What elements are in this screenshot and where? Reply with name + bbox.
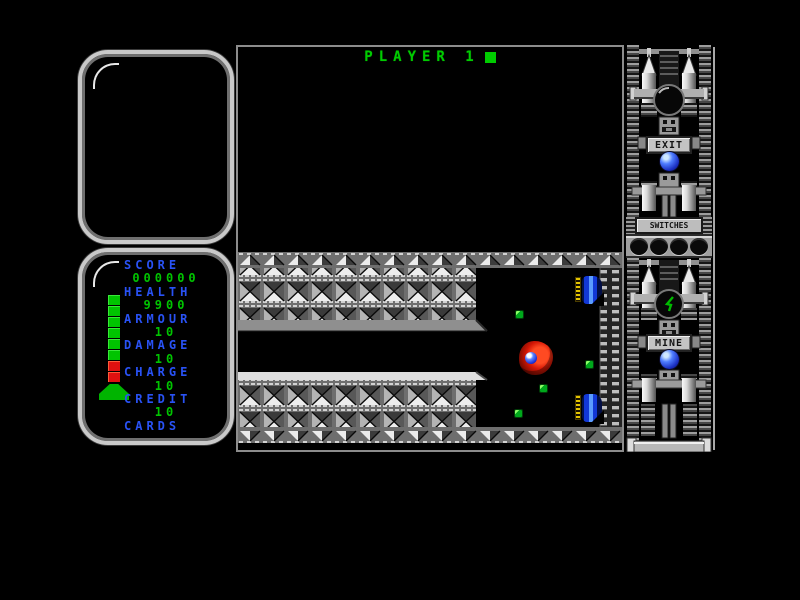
switches-plate: SWITCHES (635, 217, 703, 234)
stat-row: CREDIT10 (124, 393, 230, 420)
health-segment-green (108, 328, 120, 338)
stat-label: CARDS (124, 420, 230, 433)
stat-row: CARDS (124, 420, 230, 433)
stat-label: ARMOUR (124, 313, 230, 326)
stat-row: SCORE000000 (124, 259, 230, 286)
health-segment-green (108, 306, 120, 316)
health-segment-green (108, 295, 120, 305)
stat-value: 10 (128, 326, 204, 339)
cursor-block-icon (485, 52, 496, 63)
stat-label: HEALTH (124, 286, 230, 299)
status-orb-top (654, 85, 684, 115)
creature-part (525, 352, 537, 364)
player-title: PLAYER 1 (238, 49, 622, 65)
switch-panel (626, 234, 712, 258)
control-tower: EXIT SWITCHES MINE (626, 45, 716, 452)
switches-rib-left (626, 217, 635, 234)
mine-label: MINE (655, 338, 683, 349)
tower-top-machinery (626, 45, 716, 217)
switch-hole[interactable] (670, 238, 688, 255)
panel-shine (93, 261, 119, 287)
switches-label: SWITCHES (650, 221, 689, 230)
health-segment-red (108, 372, 120, 382)
stat-row: ARMOUR10 (124, 313, 230, 340)
wall-texture (238, 252, 622, 443)
switch-hole[interactable] (630, 238, 648, 255)
turret[interactable] (575, 394, 602, 422)
health-segment-green (108, 350, 120, 360)
mine-orb-button[interactable] (660, 350, 679, 369)
player-title-text: PLAYER 1 (364, 49, 479, 65)
pickup[interactable] (540, 385, 547, 392)
pickup[interactable] (516, 311, 523, 318)
playfield: PLAYER 1 (236, 45, 624, 452)
game-screen: SCORE000000HEALTH9900ARMOUR10DAMAGE10CHA… (0, 0, 800, 600)
hud-panel-stats: SCORE000000HEALTH9900ARMOUR10DAMAGE10CHA… (78, 248, 234, 445)
switch-hole[interactable] (690, 238, 708, 255)
exit-label: EXIT (655, 140, 683, 151)
health-segment-green (108, 317, 120, 327)
turret[interactable] (575, 276, 602, 304)
switch-hole[interactable] (650, 238, 668, 255)
stat-label: SCORE (124, 259, 230, 272)
stat-value: 10 (128, 380, 204, 393)
stat-value: 10 (128, 353, 204, 366)
stats-list: SCORE000000HEALTH9900ARMOUR10DAMAGE10CHA… (124, 259, 230, 433)
hud-panel-top (78, 50, 234, 244)
pickup[interactable] (586, 361, 593, 368)
stat-row: DAMAGE10 (124, 339, 230, 366)
health-segment-red (108, 361, 120, 371)
stat-label: CHARGE (124, 366, 230, 379)
switches-rib-right (703, 217, 712, 234)
stat-value: 000000 (128, 272, 204, 285)
stat-value: 10 (128, 406, 204, 419)
stat-value: 9900 (128, 299, 204, 312)
exit-orb-button[interactable] (660, 152, 679, 171)
stat-label: CREDIT (124, 393, 230, 406)
turret-part (575, 277, 581, 302)
panel-shine (93, 63, 119, 89)
stat-row: CHARGE10 (124, 366, 230, 393)
stat-row: HEALTH9900 (124, 286, 230, 313)
health-segment-green (108, 339, 120, 349)
pickup[interactable] (515, 410, 522, 417)
turret-part (575, 395, 581, 420)
tower-edge-line (713, 47, 715, 450)
stat-label: DAMAGE (124, 339, 230, 352)
